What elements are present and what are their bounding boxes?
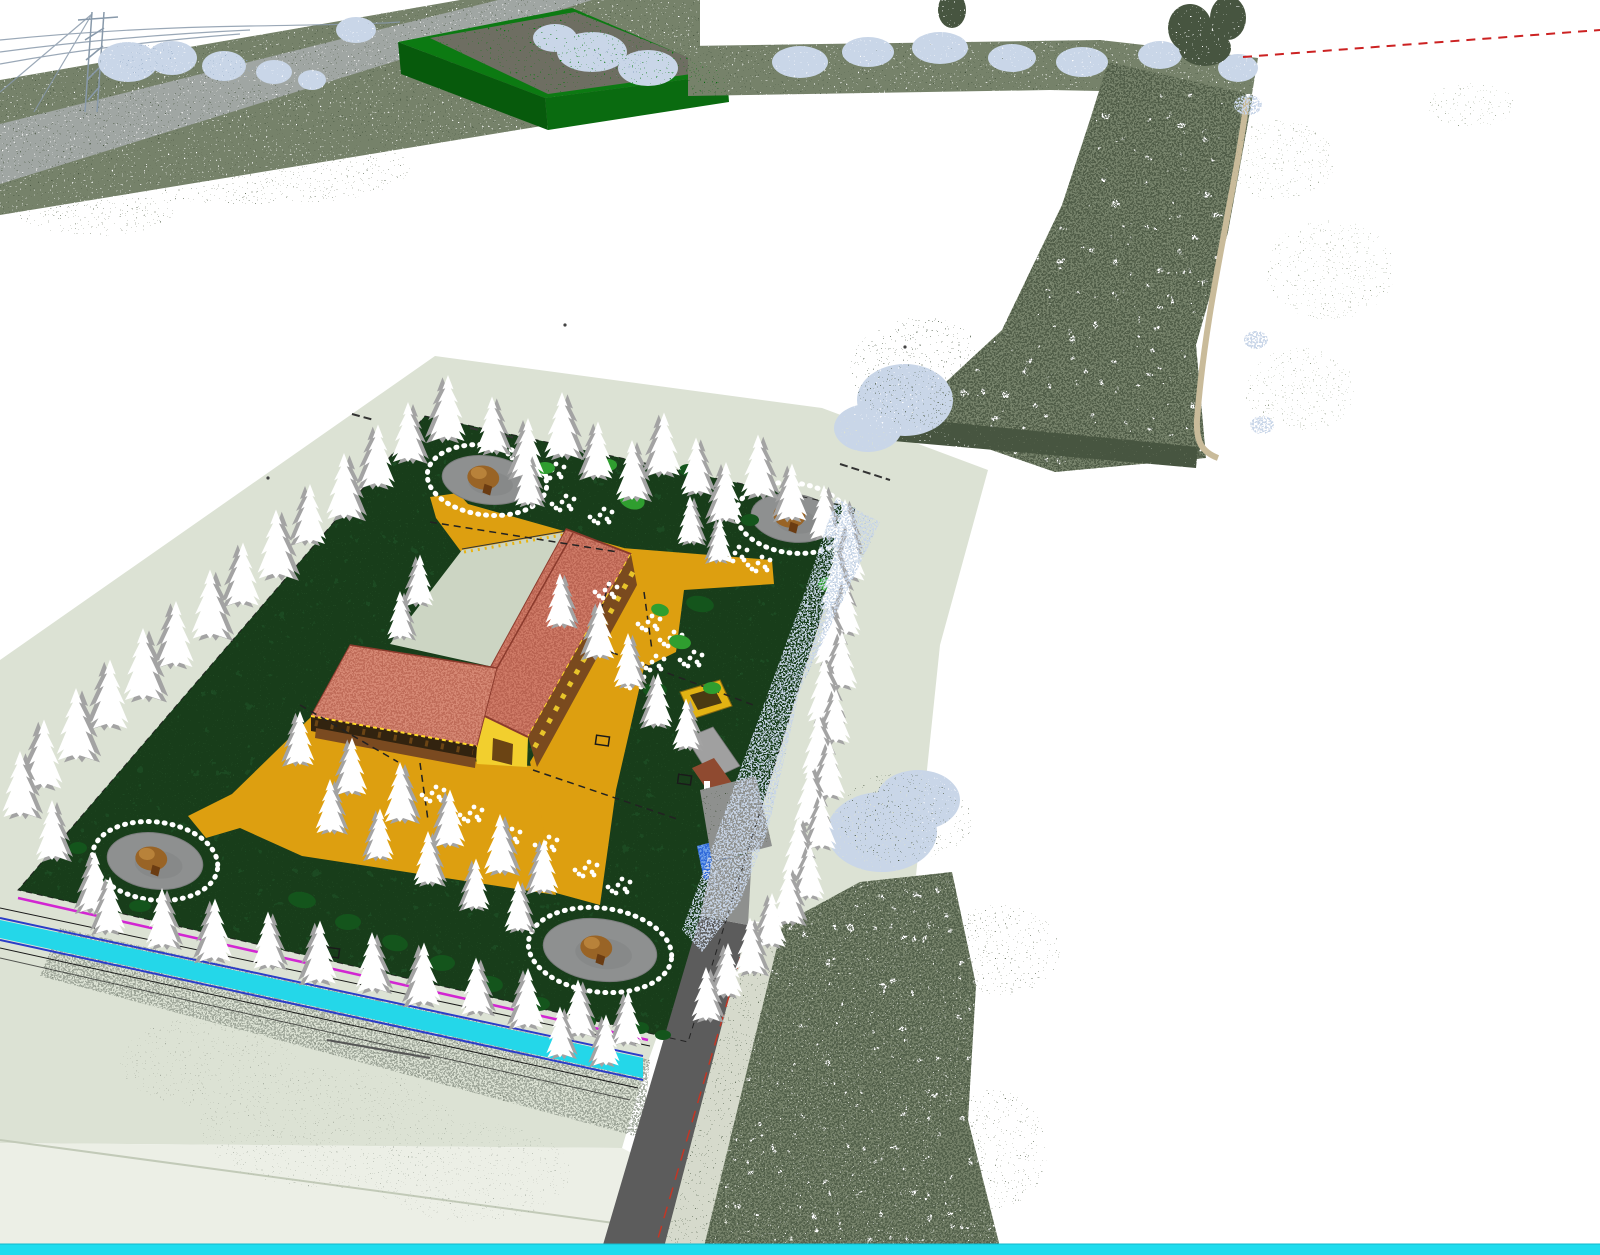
white-shrub-dot — [593, 590, 598, 595]
white-shrub-dot — [692, 650, 697, 655]
white-shrub-dot — [746, 563, 751, 568]
white-shrub-dot — [442, 788, 447, 793]
pointcloud-clump — [370, 1122, 570, 1222]
white-shrub-dot — [628, 880, 633, 885]
pointcloud-clump — [533, 24, 577, 52]
white-shrub-dot — [428, 799, 433, 804]
white-shrub-dot — [581, 874, 586, 879]
white-shrub-dot — [595, 863, 600, 868]
white-shrub-dot — [754, 569, 759, 574]
white-shrub-dot — [646, 620, 651, 625]
white-shrub-dot — [742, 558, 747, 563]
white-shrub-dot — [468, 811, 473, 816]
white-shrub-dot — [601, 596, 606, 601]
pointcloud-clump — [1056, 47, 1108, 77]
white-shrub-dot — [644, 628, 649, 633]
white-shrub-dot — [768, 558, 773, 563]
white-shrub-dot — [572, 497, 577, 502]
pointcloud-clump — [120, 42, 180, 78]
white-shrub-dot — [562, 465, 567, 470]
shrub — [741, 514, 759, 526]
viewport-3d[interactable] — [0, 0, 1600, 1255]
white-shrub-dot — [672, 630, 677, 635]
white-shrub-dot — [745, 548, 750, 553]
white-shrub-dot — [588, 515, 593, 520]
scanned-powerline-red — [1243, 30, 1600, 57]
white-shrub-dot — [655, 627, 660, 632]
white-shrub-dot — [472, 805, 477, 810]
white-shrub-dot — [662, 657, 667, 662]
white-shrub-dot — [650, 660, 655, 665]
white-shrub-dot — [650, 614, 655, 619]
pointcloud-clump — [988, 44, 1036, 72]
white-shrub-dot — [688, 656, 693, 661]
white-shrub-dot — [554, 462, 559, 467]
pointcloud-clump — [912, 32, 968, 64]
white-shrub-dot — [420, 793, 425, 798]
application-viewport — [0, 0, 1600, 1255]
pointcloud-clump — [120, 1017, 300, 1107]
pointcloud-clump — [1425, 83, 1515, 127]
pointcloud-clump — [895, 792, 975, 852]
white-shrub-dot — [654, 654, 659, 659]
white-shrub-dot — [620, 877, 625, 882]
white-shrub-dot — [569, 507, 574, 512]
pointcloud-clump — [256, 60, 292, 84]
pointcloud-clump — [938, 0, 966, 28]
pointcloud-clump — [937, 1090, 1047, 1210]
pointcloud-clump — [1244, 331, 1268, 349]
white-shrub-dot — [666, 644, 671, 649]
white-shrub-dot — [731, 559, 736, 564]
pointcloud-clump — [1234, 95, 1262, 115]
white-shrub-dot — [607, 582, 612, 587]
white-shrub-dot — [547, 835, 552, 840]
white-shrub-dot — [559, 475, 564, 480]
white-shrub-dot — [533, 843, 538, 848]
white-shrub-dot — [733, 551, 738, 556]
white-shrub-dot — [625, 890, 630, 895]
white-shrub-dot — [515, 840, 520, 845]
white-shrub-dot — [616, 883, 621, 888]
pointcloud-clump — [842, 37, 894, 67]
white-shrub-dot — [756, 561, 761, 566]
white-shrub-dot — [587, 860, 592, 865]
pointcloud-clump — [206, 54, 254, 82]
white-shrub-dot — [466, 819, 471, 824]
white-shrub-dot — [518, 830, 523, 835]
white-shrub-dot — [552, 848, 557, 853]
white-shrub-dot — [558, 508, 563, 513]
white-shrub-dot — [555, 838, 560, 843]
white-shrub-dot — [615, 585, 620, 590]
shrub — [335, 914, 361, 930]
shrub — [429, 955, 455, 971]
white-shrub-dot — [560, 500, 565, 505]
pointcloud-clump — [1225, 120, 1335, 200]
stray-point — [563, 323, 566, 326]
white-shrub-dot — [612, 595, 617, 600]
white-shrub-dot — [697, 663, 702, 668]
white-shrub-dot — [678, 658, 683, 663]
pointcloud-clump — [940, 905, 1060, 995]
white-shrub-dot — [596, 521, 601, 526]
white-shrub-dot — [510, 827, 515, 832]
white-shrub-dot — [610, 510, 615, 515]
white-shrub-dot — [700, 653, 705, 658]
white-shrub-dot — [658, 638, 663, 643]
white-shrub-dot — [477, 818, 482, 823]
pointcloud-clump — [298, 70, 326, 90]
white-shrub-dot — [607, 520, 612, 525]
shrub — [703, 682, 721, 694]
shrub — [129, 900, 151, 912]
pointcloud-clump — [850, 317, 990, 427]
white-shrub-dot — [564, 494, 569, 499]
white-shrub-dot — [434, 785, 439, 790]
pointcloud-clump — [772, 46, 828, 78]
white-shrub-dot — [686, 664, 691, 669]
white-shrub-dot — [658, 617, 663, 622]
white-shrub-dot — [458, 813, 463, 818]
pointcloud-clump — [1168, 4, 1212, 52]
white-shrub-dot — [648, 668, 653, 673]
white-shrub-dot — [614, 891, 619, 896]
pointcloud-clump — [336, 17, 376, 43]
white-shrub-dot — [598, 513, 603, 518]
bottom-cyan-bar — [0, 1244, 1600, 1255]
white-shrub-dot — [550, 502, 555, 507]
white-shrub-dot — [603, 588, 608, 593]
white-shrub-dot — [737, 545, 742, 550]
pointcloud-clump — [1250, 416, 1274, 434]
white-shrub-dot — [573, 868, 578, 873]
white-shrub-dot — [602, 507, 607, 512]
pointcloud-clump — [15, 180, 175, 236]
shrub — [655, 1030, 671, 1040]
pointcloud-clump — [1265, 220, 1395, 320]
white-shrub-dot — [592, 873, 597, 878]
white-shrub-dot — [606, 885, 611, 890]
pointcloud-clump — [590, 44, 650, 76]
white-shrub-dot — [636, 622, 641, 627]
white-shrub-dot — [548, 476, 553, 481]
white-shrub-dot — [480, 808, 485, 813]
stray-point — [266, 476, 269, 479]
stray-point — [903, 345, 906, 348]
white-shrub-dot — [760, 555, 765, 560]
white-shrub-dot — [583, 866, 588, 871]
white-shrub-dot — [430, 791, 435, 796]
shrub — [69, 842, 87, 854]
white-shrub-dot — [765, 568, 770, 573]
white-shrub-dot — [659, 667, 664, 672]
